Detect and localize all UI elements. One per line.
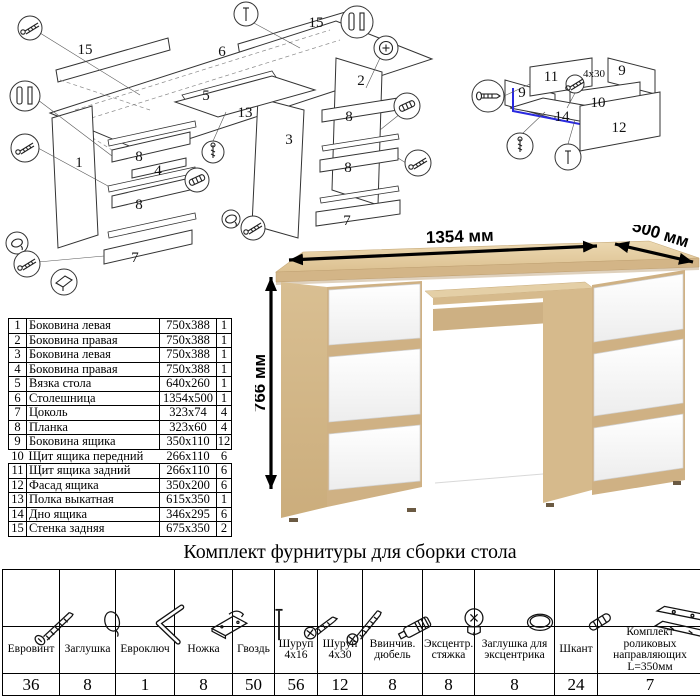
- part-number-label: 10: [591, 95, 606, 111]
- parts-table-row: 9Боковина ящика350x11012: [9, 435, 232, 450]
- callout-screw-icon: [14, 251, 40, 277]
- parts-cell-num: 5: [9, 377, 27, 392]
- parts-cell-size: 750x388: [160, 348, 217, 363]
- parts-cell-size: 350x110: [160, 435, 217, 450]
- parts-cell-name: Столешница: [27, 391, 160, 406]
- parts-table-row: 7Цоколь323x744: [9, 406, 232, 421]
- callout-pins-icon: [10, 81, 40, 111]
- parts-table-row: 8Планка323x604: [9, 420, 232, 435]
- parts-cell-name: Боковина ящика: [27, 435, 160, 450]
- callout-screw-icon: [18, 16, 42, 40]
- parts-cell-qty: 6: [217, 478, 232, 493]
- parts-cell-qty: 1: [217, 333, 232, 348]
- parts-cell-name: Щит ящика задний: [27, 464, 160, 479]
- screw-size-note: 4x30: [583, 68, 606, 80]
- parts-cell-qty: 1: [217, 362, 232, 377]
- callout-screw-icon: [566, 75, 584, 93]
- parts-cell-size: 750x388: [160, 333, 217, 348]
- parts-table-row: 11Щит ящика задний266x1106: [9, 464, 232, 479]
- callout-confirmat-icon: [472, 80, 504, 112]
- parts-cell-num: 10: [9, 449, 27, 464]
- width-dimension-label: 1354 мм: [426, 226, 494, 247]
- callout-screw-v-icon: [507, 133, 533, 159]
- parts-cell-qty: 1: [217, 493, 232, 508]
- parts-cell-size: 323x74: [160, 406, 217, 421]
- callout-screw-v-icon: [202, 141, 224, 163]
- parts-table: 1Боковина левая750x38812Боковина правая7…: [8, 318, 232, 537]
- parts-cell-qty: 12: [217, 435, 232, 450]
- hardware-table-row: [3, 570, 700, 627]
- parts-cell-name: Полка выкатная: [27, 493, 160, 508]
- height-dimension-label: 766 мм: [255, 354, 269, 412]
- callout-cap-icon: [222, 210, 240, 228]
- callout-screw-icon: [11, 134, 39, 162]
- parts-table-row: 10Щит ящика передний266x1106: [9, 449, 232, 464]
- parts-cell-name: Боковина левая: [27, 319, 160, 334]
- part-number-label: 6: [218, 44, 226, 60]
- part-number-label: 2: [357, 73, 365, 89]
- parts-table-row: 14Дно ящика346x2956: [9, 507, 232, 522]
- part-number-label: 15: [309, 15, 324, 31]
- parts-cell-name: Боковина правая: [27, 362, 160, 377]
- parts-cell-size: 1354x500: [160, 391, 217, 406]
- callout-pins-icon: [341, 6, 373, 38]
- parts-table-row: 13Полка выкатная615x3501: [9, 493, 232, 508]
- callout-nail-icon: [234, 2, 258, 26]
- callout-screw-icon: [405, 150, 431, 176]
- parts-cell-qty: 1: [217, 391, 232, 406]
- part-number-label: 7: [131, 250, 139, 266]
- parts-cell-size: 266x110: [160, 464, 217, 479]
- parts-cell-name: Щит ящика передний: [27, 449, 160, 464]
- callout-nail-icon: [555, 144, 581, 170]
- part-number-label: 9: [618, 63, 626, 79]
- parts-cell-name: Стенка задняя: [27, 522, 160, 537]
- parts-cell-size: 346x295: [160, 507, 217, 522]
- confirmat-screw-icon: [3, 570, 60, 627]
- parts-cell-num: 8: [9, 420, 27, 435]
- parts-cell-name: Боковина правая: [27, 333, 160, 348]
- part-number-label: 12: [612, 120, 627, 136]
- part-number-label: 15: [78, 42, 93, 58]
- parts-cell-qty: 6: [217, 464, 232, 479]
- parts-cell-num: 15: [9, 522, 27, 537]
- parts-cell-name: Цоколь: [27, 406, 160, 421]
- desk-render: 1354 мм500 мм766 мм: [255, 225, 700, 555]
- parts-table-body: 1Боковина левая750x38812Боковина правая7…: [9, 319, 232, 537]
- parts-cell-size: 640x260: [160, 377, 217, 392]
- parts-cell-size: 750x388: [160, 362, 217, 377]
- part-number-label: 8: [344, 160, 352, 176]
- parts-cell-size: 350x200: [160, 478, 217, 493]
- parts-cell-qty: 2: [217, 522, 232, 537]
- part-number-label: 8: [135, 149, 143, 165]
- parts-cell-num: 3: [9, 348, 27, 363]
- part-number-label: 11: [544, 69, 558, 85]
- part-number-label: 14: [555, 109, 571, 125]
- parts-table-row: 2Боковина правая750x3881: [9, 333, 232, 348]
- parts-cell-name: Боковина левая: [27, 348, 160, 363]
- parts-cell-name: Планка: [27, 420, 160, 435]
- parts-table-row: 6Столешница1354x5001: [9, 391, 232, 406]
- parts-table-row: 12Фасад ящика350x2006: [9, 478, 232, 493]
- exploded-drawer-diagram: 11991014124x30: [455, 0, 700, 180]
- callout-dowel-icon: [394, 93, 420, 119]
- part-number-label: 4: [154, 163, 162, 179]
- parts-cell-num: 7: [9, 406, 27, 421]
- parts-cell-num: 1: [9, 319, 27, 334]
- assembly-instruction-sheet: 156151251338487887 11991014124x30: [0, 0, 700, 677]
- parts-cell-num: 2: [9, 333, 27, 348]
- parts-table-row: 3Боковина левая750x3881: [9, 348, 232, 363]
- parts-cell-size: 675x350: [160, 522, 217, 537]
- parts-cell-size: 323x60: [160, 420, 217, 435]
- parts-cell-num: 9: [9, 435, 27, 450]
- callout-foot-icon: [51, 269, 77, 295]
- parts-cell-qty: 6: [217, 507, 232, 522]
- parts-table-row: 15Стенка задняя675x3502: [9, 522, 232, 537]
- parts-cell-name: Дно ящика: [27, 507, 160, 522]
- parts-cell-qty: 4: [217, 420, 232, 435]
- desk-body: [276, 241, 699, 522]
- parts-cell-num: 4: [9, 362, 27, 377]
- parts-cell-qty: 6: [217, 449, 232, 464]
- parts-table-row: 4Боковина правая750x3881: [9, 362, 232, 377]
- parts-cell-num: 6: [9, 391, 27, 406]
- parts-cell-qty: 1: [217, 319, 232, 334]
- parts-cell-num: 12: [9, 478, 27, 493]
- parts-cell-size: 266x110: [160, 449, 217, 464]
- callout-dowel-icon: [185, 168, 209, 192]
- part-number-label: 8: [345, 109, 353, 125]
- part-number-label: 1: [75, 155, 83, 171]
- parts-cell-qty: 1: [217, 348, 232, 363]
- part-number-label: 8: [135, 197, 143, 213]
- parts-table-row: 1Боковина левая750x3881: [9, 319, 232, 334]
- parts-cell-name: Вязка стола: [27, 377, 160, 392]
- parts-cell-size: 750x388: [160, 319, 217, 334]
- part-number-label: 3: [285, 132, 293, 148]
- parts-cell-num: 13: [9, 493, 27, 508]
- parts-cell-qty: 4: [217, 406, 232, 421]
- parts-cell-num: 11: [9, 464, 27, 479]
- part-number-label: 5: [202, 88, 210, 104]
- parts-cell-size: 615x350: [160, 493, 217, 508]
- part-number-label: 9: [518, 85, 526, 101]
- part-number-label: 13: [238, 105, 253, 121]
- callout-cam-icon: [374, 36, 398, 60]
- parts-table-row: 5Вязка стола640x2601: [9, 377, 232, 392]
- parts-cell-name: Фасад ящика: [27, 478, 160, 493]
- parts-cell-num: 14: [9, 507, 27, 522]
- hardware-kit-title: Комплект фурнитуры для сборки стола: [0, 541, 700, 564]
- parts-cell-qty: 1: [217, 377, 232, 392]
